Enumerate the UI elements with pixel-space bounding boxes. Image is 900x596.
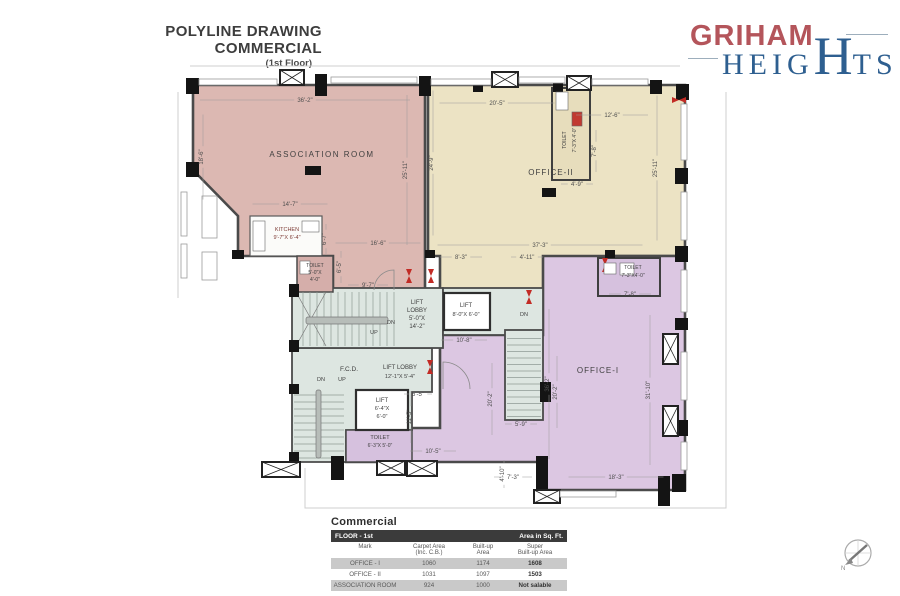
svg-text:20'-5": 20'-5" [489,101,504,107]
table-body: OFFICE - I106011741608OFFICE - II1031109… [331,558,567,591]
table-cell: 1608 [507,560,563,567]
svg-text:7'-8": 7'-8" [592,145,598,157]
window [199,79,277,85]
table-cell: 924 [399,582,459,589]
svg-text:4'-10": 4'-10" [500,466,506,481]
fixture [572,112,582,126]
window [681,192,687,240]
kitchen-size-label: 9'-7"X 6'-4" [273,235,300,241]
toilet-label: TOILET [306,263,323,269]
area-table: Commercial FLOOR - 1st Area in Sq. Ft. M… [331,516,567,591]
svg-text:5'-9": 5'-9" [515,422,527,428]
window [181,192,187,236]
stair-well-right [505,330,543,420]
table-cell: ASSOCIATION ROOM [331,582,399,589]
room-label-association: ASSOCIATION ROOM [269,150,374,159]
table-cell: 1503 [507,571,563,578]
table-cell: 1031 [399,571,459,578]
svg-text:4'-9": 4'-9" [571,182,583,188]
toilet-label: TOILET [624,265,641,271]
column [425,250,435,258]
window [431,79,491,85]
lift-label: LIFT [460,303,473,309]
table-cell: 1097 [459,571,507,578]
svg-text:10'-5": 10'-5" [425,449,440,455]
svg-text:6'-7": 6'-7" [322,233,328,245]
stair-up-label: UP [370,330,378,336]
svg-text:11'-5": 11'-5" [407,410,413,425]
column [289,452,299,462]
column [419,76,431,96]
column [650,80,662,94]
lift-size-label: 6'-4"X [375,406,390,412]
table-title: Commercial [331,516,567,528]
column [289,384,299,394]
svg-text:10'-8": 10'-8" [456,338,471,344]
svg-text:37'-3": 37'-3" [532,243,547,249]
svg-text:36'-2": 36'-2" [297,98,312,104]
lift-lobby-size-label: 12'-1"X 5'-4" [385,374,415,380]
toilet-size-label: 4'-0" [310,277,320,283]
table-row: ASSOCIATION ROOM9241000Not salable [331,580,567,591]
svg-text:7'-8": 7'-8" [624,292,636,298]
svg-text:6'-5": 6'-5" [337,261,343,273]
column-box [262,462,300,477]
column-box [280,70,304,85]
lift-size-label: 8'-0"X 6'-0" [452,312,479,318]
table-column-header: SuperBuilt-up Area [507,544,563,556]
toilet-size-label: 5'-0"X [308,270,322,276]
stair-dn-label: DN [520,312,528,318]
column [675,246,688,262]
table-cell: 1000 [459,582,507,589]
window [202,252,217,280]
toilet-label: TOILET [370,435,390,441]
compass-north-label: N [841,566,845,572]
column [542,188,556,197]
svg-text:20'-2": 20'-2" [488,391,494,406]
column-box [663,334,678,364]
svg-text:24'-9": 24'-9" [429,155,435,170]
stair-dn-label: DN [387,320,395,326]
column-box [407,461,437,476]
window [519,77,565,83]
table-header-bar: FLOOR - 1st Area in Sq. Ft. [331,530,567,542]
svg-text:9'-7": 9'-7" [362,283,374,289]
column-box [567,76,591,90]
column [605,250,615,258]
fixture [253,221,265,251]
window [202,196,217,238]
window [681,442,687,470]
svg-text:5'-5": 5'-5" [412,392,424,398]
column [331,456,344,480]
svg-text:14'-7": 14'-7" [282,202,297,208]
room-label-office-1: OFFICE-I [577,366,619,375]
window [560,491,616,497]
column-box [534,490,560,503]
toilet-label: TOILET [562,131,568,148]
toilet-size-label: 7'-3"X 4'-0" [572,127,578,152]
column-box [377,461,405,475]
lift-lobby-label: LOBBY [407,308,427,314]
floor-plan: 36'-2"18'-6"25'-11"14'-7"16'-6"9'-7"6'-5… [0,0,900,596]
table-cell: 1060 [399,560,459,567]
lift-size-label: 6'-0" [377,414,388,420]
fixture [302,221,319,232]
table-floor-label: FLOOR - 1st [335,533,373,540]
table-column-header: Carpet Area(Inc. C.B.) [399,544,459,556]
column [315,74,327,96]
svg-text:8'-3": 8'-3" [455,255,467,261]
table-cell: OFFICE - I [331,560,399,567]
column-box [492,72,518,87]
column [289,284,299,297]
window [681,352,687,400]
window [592,79,648,85]
window [681,104,687,160]
svg-text:18'-3": 18'-3" [608,475,623,481]
column [672,474,686,492]
svg-text:7'-3": 7'-3" [507,475,519,481]
fixture [604,263,616,274]
table-cell: Not salable [507,582,563,589]
room-label-office-2: OFFICE-II [528,168,573,177]
column [675,168,688,184]
column [186,78,199,94]
table-cell: 1174 [459,560,507,567]
column [289,340,299,352]
north-compass-icon: N [841,540,871,572]
page: POLYLINE DRAWING COMMERCIAL (1st Floor) … [0,0,900,596]
table-row: OFFICE - I106011741608 [331,558,567,569]
svg-text:25'-11": 25'-11" [403,161,409,179]
svg-text:36'-2": 36'-2" [545,376,551,391]
svg-text:25'-11": 25'-11" [653,159,659,177]
column [658,476,670,506]
column [536,456,548,492]
table-column-headers: MarkCarpet Area(Inc. C.B.)Built-upAreaSu… [331,542,567,558]
dimension: 4'-10" [500,460,506,488]
svg-text:18'-6": 18'-6" [199,149,205,164]
window [181,244,187,278]
column-box [663,406,678,436]
lift-lobby-label: LIFT [411,300,424,306]
column [675,318,688,330]
window [331,77,417,83]
column [676,84,689,100]
svg-text:12'-6": 12'-6" [604,113,619,119]
door-marker [428,269,434,283]
svg-text:4'-11": 4'-11" [520,255,535,261]
fcd-label: F.C.D. [340,366,358,373]
window [681,270,687,312]
toilet-size-label: 6'-3"X 5'-0" [368,443,393,449]
table-unit-label: Area in Sq. Ft. [519,533,563,540]
lift-lobby-label: LIFT LOBBY [383,365,417,371]
column [186,162,199,177]
fixture [556,92,568,110]
svg-text:20'-2": 20'-2" [553,384,559,399]
table-cell: OFFICE - II [331,571,399,578]
stair-up-label: UP [338,377,346,383]
lift-lobby-label: 14'-2" [409,324,424,330]
lift-label: LIFT [376,398,389,404]
kitchen-label: KITCHEN [275,227,299,233]
svg-text:16'-6": 16'-6" [370,241,385,247]
table-column-header: Mark [331,544,399,556]
lift-lobby-label: 5'-0"X [409,316,425,322]
table-column-header: Built-upArea [459,544,507,556]
svg-text:31'-10": 31'-10" [646,381,652,400]
column [232,250,244,259]
column [305,166,321,175]
toilet-size-label: 7'-3"X4'-0" [621,273,644,279]
table-row: OFFICE - II103110971503 [331,569,567,580]
stair-dn-label: DN [317,377,325,383]
